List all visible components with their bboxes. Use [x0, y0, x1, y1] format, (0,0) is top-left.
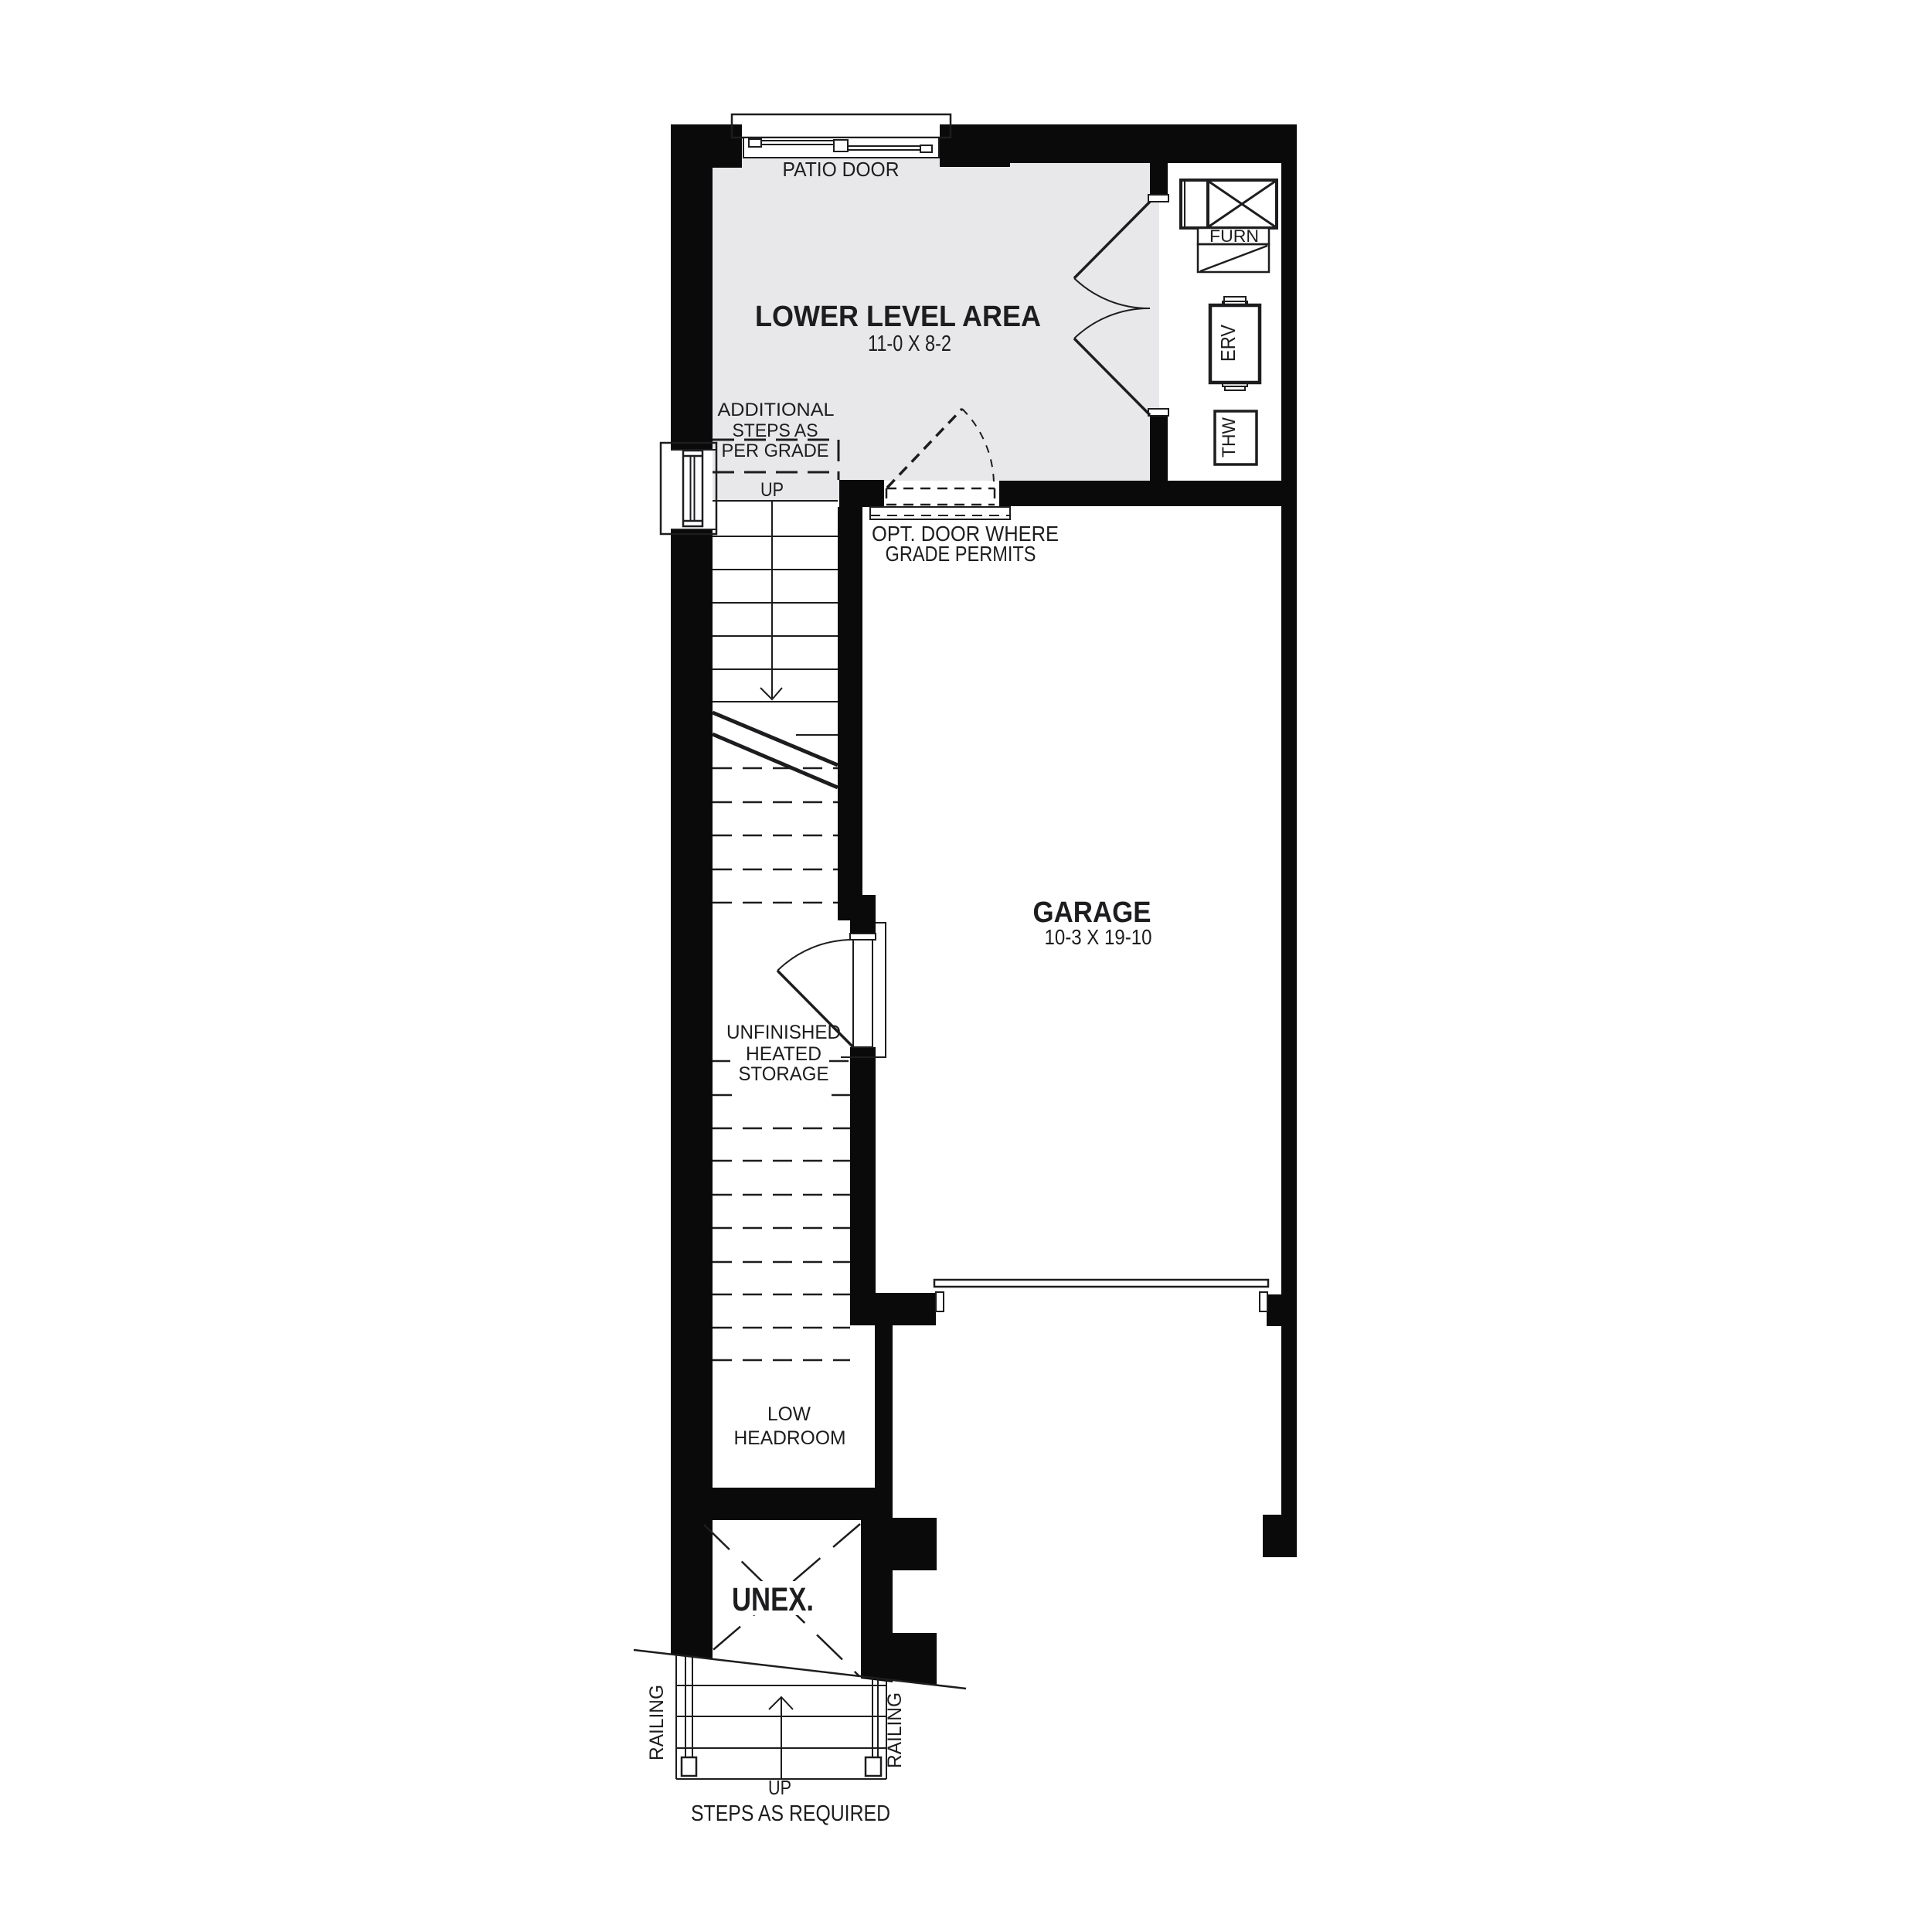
svg-text:11-0 X 8-2: 11-0 X 8-2 [868, 332, 951, 356]
svg-text:ADDITIONAL: ADDITIONAL [718, 400, 835, 420]
svg-text:RAILING: RAILING [646, 1685, 668, 1760]
svg-text:ERV: ERV [1216, 324, 1240, 362]
svg-text:UP: UP [768, 1776, 791, 1799]
svg-text:UNEX.: UNEX. [732, 1581, 814, 1618]
svg-text:RAILING: RAILING [884, 1692, 906, 1768]
svg-text:HEADROOM: HEADROOM [734, 1427, 846, 1449]
svg-text:GRADE PERMITS: GRADE PERMITS [886, 542, 1036, 566]
svg-text:HEATED: HEATED [746, 1043, 821, 1065]
svg-text:PER GRADE: PER GRADE [722, 440, 829, 461]
svg-text:STEPS AS: STEPS AS [733, 420, 818, 441]
svg-text:STORAGE: STORAGE [739, 1063, 829, 1085]
svg-text:THW: THW [1219, 417, 1240, 457]
svg-text:GARAGE: GARAGE [1033, 896, 1151, 929]
svg-text:UNFINISHED: UNFINISHED [726, 1022, 841, 1043]
svg-text:UP: UP [760, 479, 784, 501]
svg-text:PATIO DOOR: PATIO DOOR [783, 158, 900, 181]
svg-text:FURN: FURN [1209, 226, 1259, 246]
svg-text:10-3 X 19-10: 10-3 X 19-10 [1045, 925, 1152, 949]
svg-text:STEPS AS REQUIRED: STEPS AS REQUIRED [691, 1801, 890, 1826]
svg-text:LOWER LEVEL AREA: LOWER LEVEL AREA [755, 301, 1041, 333]
svg-text:LOW: LOW [767, 1403, 811, 1425]
